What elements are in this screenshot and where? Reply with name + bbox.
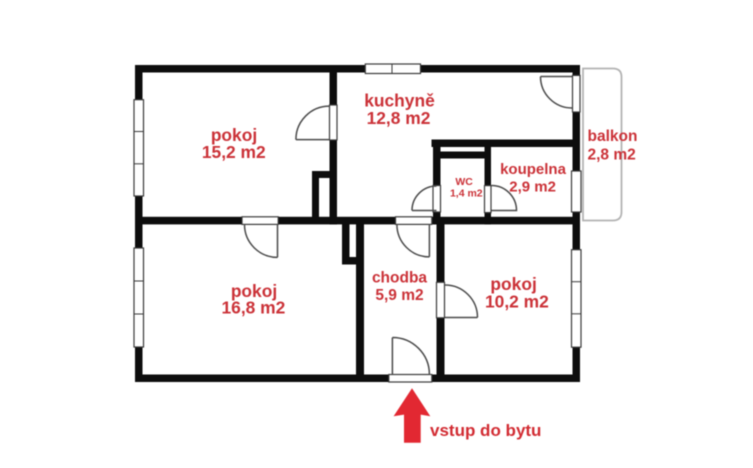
svg-text:16,8 m2: 16,8 m2 xyxy=(221,298,285,318)
svg-text:WC: WC xyxy=(455,176,473,188)
svg-text:1,4 m2: 1,4 m2 xyxy=(450,188,483,200)
svg-text:12,8 m2: 12,8 m2 xyxy=(367,108,431,128)
svg-text:15,2 m2: 15,2 m2 xyxy=(202,142,266,162)
svg-text:chodba: chodba xyxy=(372,269,427,286)
svg-text:vstup do bytu: vstup do bytu xyxy=(430,421,541,440)
svg-text:10,2 m2: 10,2 m2 xyxy=(485,292,549,312)
svg-text:balkon: balkon xyxy=(588,128,638,145)
svg-text:5,9 m2: 5,9 m2 xyxy=(375,287,423,304)
svg-text:2,8 m2: 2,8 m2 xyxy=(588,146,636,163)
svg-text:2,9 m2: 2,9 m2 xyxy=(509,179,556,196)
svg-text:koupelna: koupelna xyxy=(500,161,567,178)
